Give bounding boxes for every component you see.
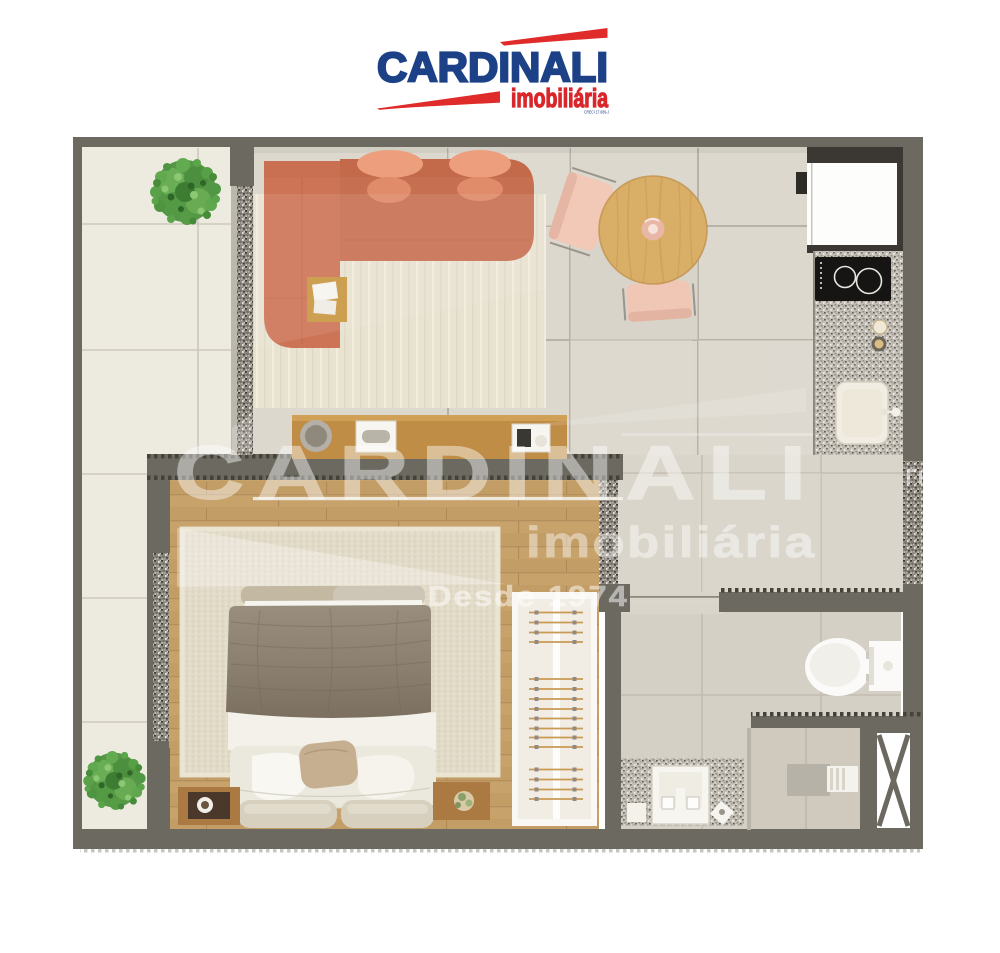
- svg-text:CRECI 17.689-J: CRECI 17.689-J: [584, 110, 609, 115]
- svg-text:CARDINALI: CARDINALI: [174, 431, 818, 515]
- svg-text:imobiliária: imobiliária: [526, 518, 816, 567]
- svg-text:CARDINALI: CARDINALI: [377, 44, 608, 91]
- svg-text:Desde 1974: Desde 1974: [428, 580, 629, 613]
